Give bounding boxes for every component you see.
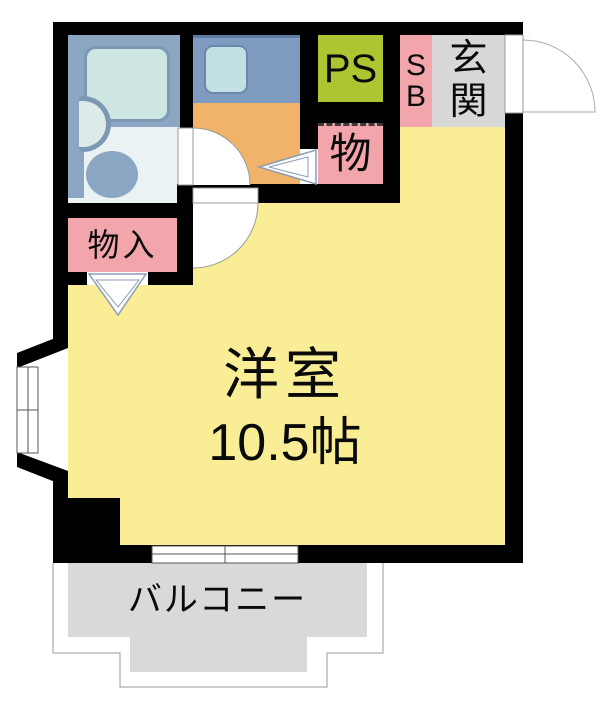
shoebox-char-b: B [406, 81, 426, 113]
bay-window-wall-top [17, 333, 68, 368]
shoebox-char-s: S [406, 50, 426, 82]
main-room-size: 10.5帖 [208, 417, 361, 469]
pipe-space-label: PS [318, 35, 383, 102]
main-room-name: 洋室 [223, 347, 347, 403]
balcony-label: バルコニー [68, 563, 367, 637]
entrance-door-swing [523, 40, 595, 112]
bay-window-wall-bottom [17, 452, 68, 487]
floor-plan: 洋室 10.5帖 PS 物 S B 玄 関 物入 バルコニー [0, 0, 616, 705]
main-door-swing [193, 203, 258, 268]
storage-folding-door-icon [259, 150, 316, 184]
entrance-char-1: 玄 [449, 38, 487, 81]
entrance-char-2: 関 [449, 81, 487, 124]
entrance-label: 玄 関 [432, 35, 505, 127]
main-room-label: 洋室 10.5帖 [180, 328, 390, 488]
closet-label: 物入 [68, 218, 177, 272]
shoebox-label: S B [400, 35, 432, 127]
main-door-panel [193, 188, 258, 203]
storage-label: 物 [318, 123, 383, 184]
bath-door-swing [193, 128, 250, 185]
entrance-door-panel [505, 35, 523, 113]
bath-door-panel [178, 128, 193, 185]
